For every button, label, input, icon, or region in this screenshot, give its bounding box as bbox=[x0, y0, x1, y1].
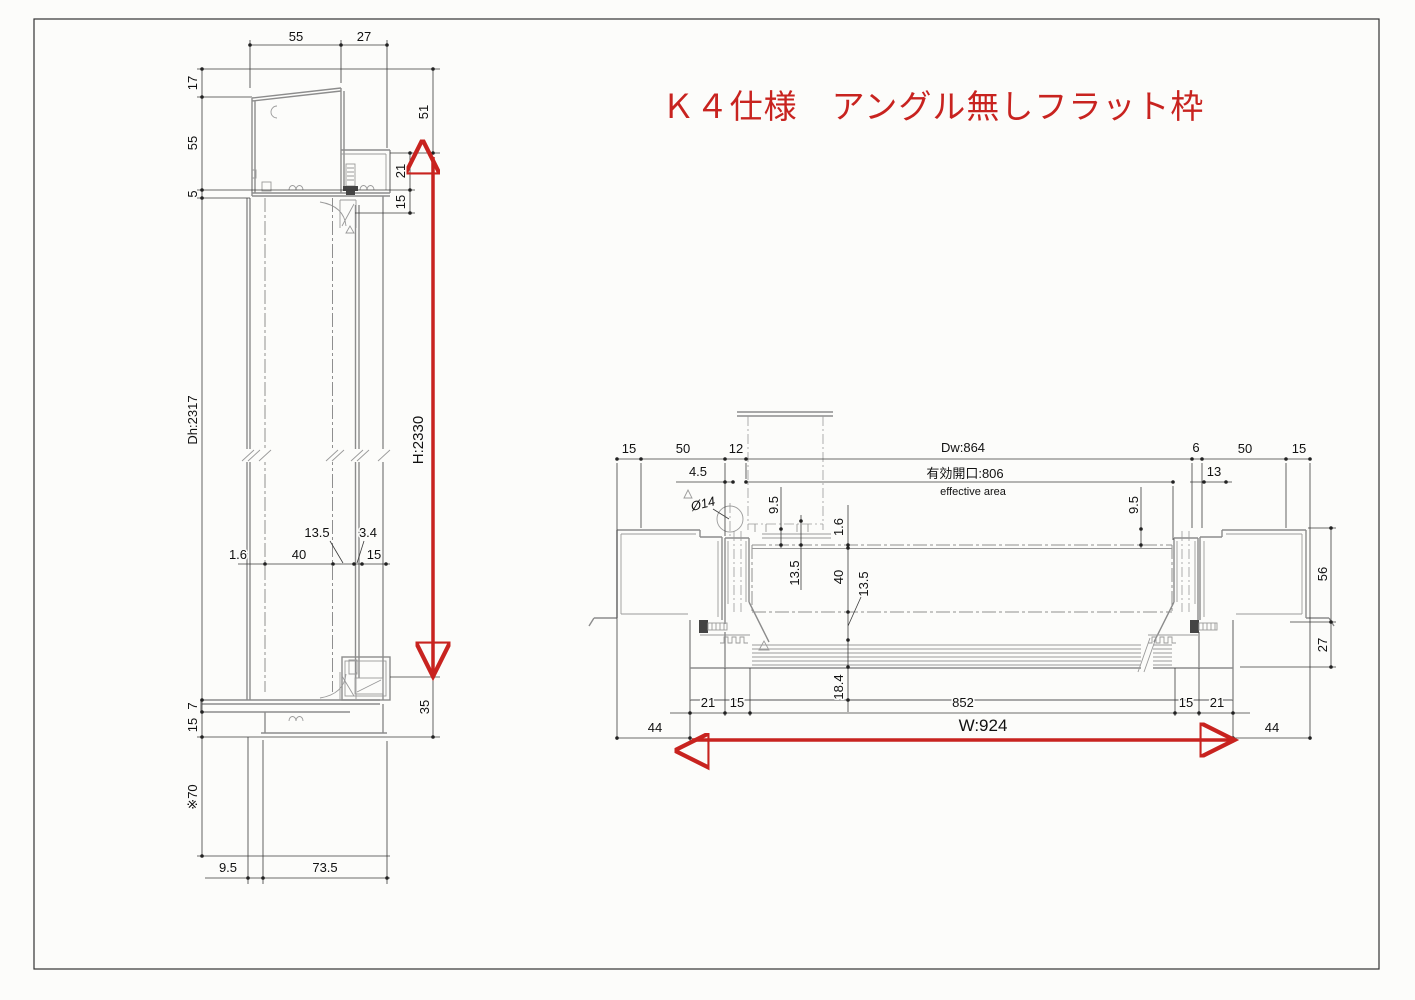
dim-right-15: 15 bbox=[393, 195, 408, 209]
dim-right-56: 56 bbox=[1315, 567, 1330, 581]
dim-13-5-lower: 13.5 bbox=[856, 571, 871, 596]
dim-40: 40 bbox=[831, 570, 846, 584]
left-view-door-lines bbox=[238, 196, 396, 700]
dim-bottom-21-right: 21 bbox=[1210, 695, 1224, 710]
dim-top-55: 55 bbox=[289, 29, 303, 44]
right-view-closer-phantom bbox=[717, 412, 833, 538]
dim-bottom-852: 852 bbox=[952, 695, 974, 710]
dim-mid-13-5: 13.5 bbox=[304, 525, 329, 540]
dim-left-note70: ※70 bbox=[185, 784, 200, 809]
dim-left-15: 15 bbox=[185, 718, 200, 732]
right-view: 15 50 12 Dw:864 6 50 15 有効開口:806 effecti… bbox=[589, 412, 1336, 743]
dim-left-7: 7 bbox=[185, 702, 200, 709]
dim-9-5-right: 9.5 bbox=[1126, 496, 1141, 514]
dim-top-12: 12 bbox=[729, 441, 743, 456]
dim-18-4: 18.4 bbox=[831, 674, 846, 699]
right-view-door-phantom bbox=[752, 545, 1172, 612]
dim-top-15-right: 15 bbox=[1292, 441, 1306, 456]
dim-bottom-44-left: 44 bbox=[648, 720, 662, 735]
dim-top-6: 6 bbox=[1192, 440, 1199, 455]
dim-door-height: Dh:2317 bbox=[185, 395, 200, 444]
right-view-right-jamb bbox=[1148, 530, 1334, 643]
dim-right-27: 27 bbox=[1315, 638, 1330, 652]
dim-bottom-73-5: 73.5 bbox=[312, 860, 337, 875]
left-view-head-profile bbox=[252, 88, 390, 233]
dim-1-6: 1.6 bbox=[831, 518, 846, 536]
dimension-ticks bbox=[615, 457, 1333, 740]
dim-effective-opening-jp: 有効開口:806 bbox=[926, 466, 1003, 481]
left-view-sill-profile bbox=[197, 657, 390, 856]
dim-13: 13 bbox=[1207, 464, 1221, 479]
drawing-page: 55 27 17 55 5 Dh:2317 7 15 ※70 9.5 73.5 … bbox=[0, 0, 1415, 1000]
dim-left-17: 17 bbox=[185, 76, 200, 90]
dim-bottom-15-left: 15 bbox=[730, 695, 744, 710]
dim-bottom-21-left: 21 bbox=[701, 695, 715, 710]
dim-right-21: 21 bbox=[393, 164, 408, 178]
dim-overall-width: W:924 bbox=[959, 716, 1008, 735]
dim-bottom-44-right: 44 bbox=[1265, 720, 1279, 735]
dim-top-15-left: 15 bbox=[622, 441, 636, 456]
dim-bottom-9-5: 9.5 bbox=[219, 860, 237, 875]
dim-top-50-left: 50 bbox=[676, 441, 690, 456]
dim-right-51: 51 bbox=[416, 105, 431, 119]
drawing-title: Ｋ４仕様 アングル無しフラット枠 bbox=[662, 88, 1205, 125]
dim-mid-40: 40 bbox=[292, 547, 306, 562]
dim-left-55: 55 bbox=[185, 136, 200, 150]
dim-effective-opening-en: effective area bbox=[940, 486, 1007, 498]
dim-right-35: 35 bbox=[417, 700, 432, 714]
dim-mid-1-6: 1.6 bbox=[229, 547, 247, 562]
left-view: 55 27 17 55 5 Dh:2317 7 15 ※70 9.5 73.5 … bbox=[185, 29, 440, 884]
right-view-threshold bbox=[690, 620, 1233, 700]
dim-left-5: 5 bbox=[185, 190, 200, 197]
dim-4-5: 4.5 bbox=[689, 464, 707, 479]
dim-13-5-upper: 13.5 bbox=[787, 560, 802, 585]
dim-phi14: Ø14 bbox=[688, 493, 716, 514]
dim-door-width: Dw:864 bbox=[941, 440, 985, 455]
right-view-left-jamb bbox=[589, 530, 769, 650]
dim-bottom-15-right: 15 bbox=[1179, 695, 1193, 710]
dim-top-27: 27 bbox=[357, 29, 371, 44]
dim-overall-height: H:2330 bbox=[410, 416, 427, 464]
dim-9-5-left: 9.5 bbox=[766, 496, 781, 514]
dim-mid-3-4: 3.4 bbox=[359, 525, 377, 540]
dim-mid-15: 15 bbox=[367, 547, 381, 562]
dim-top-50-right: 50 bbox=[1238, 441, 1252, 456]
cad-drawing: 55 27 17 55 5 Dh:2317 7 15 ※70 9.5 73.5 … bbox=[0, 0, 1415, 1000]
